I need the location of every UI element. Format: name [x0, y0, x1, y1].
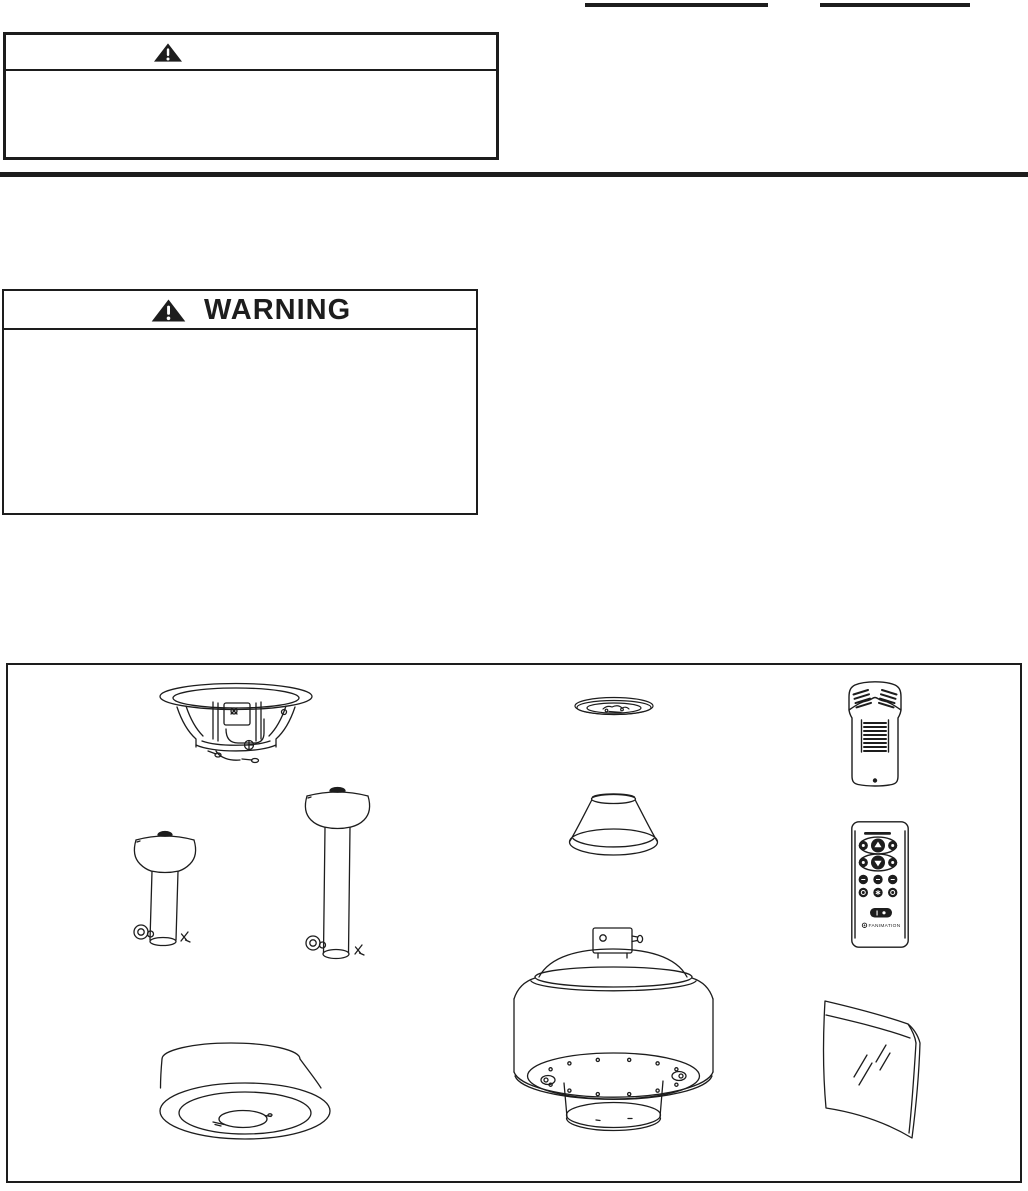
parts-diagram-box: I FANIMATION	[6, 663, 1022, 1183]
ceiling-canopy-drawing	[158, 1032, 333, 1142]
warning-triangle-icon	[153, 42, 183, 63]
remote-timer-buttons	[859, 875, 898, 884]
remote-speed-down-buttons	[859, 856, 898, 870]
ceiling-mount-bracket-drawing	[156, 681, 316, 776]
caution-box-header	[6, 35, 496, 71]
remote-brand-label: FANIMATION	[869, 923, 901, 929]
ceiling-trim-ring-drawing	[573, 694, 655, 722]
warning-box: WARNING	[2, 289, 478, 515]
glass-side-panel-drawing	[820, 1000, 922, 1142]
caution-box	[3, 32, 499, 160]
warning-title: WARNING	[204, 296, 351, 325]
remote-control-drawing: I FANIMATION	[851, 821, 909, 948]
long-downrod-drawing	[300, 783, 375, 968]
warning-box-header: WARNING	[4, 291, 476, 330]
remote-receiver-drawing	[845, 681, 905, 788]
remote-mode-buttons	[859, 888, 898, 897]
remote-light-button: I	[870, 908, 892, 918]
svg-text:I: I	[876, 909, 878, 918]
warning-triangle-icon	[150, 298, 187, 323]
fanimation-logo-icon	[862, 923, 866, 927]
short-downrod-drawing	[130, 828, 200, 953]
fan-motor-assembly-drawing	[512, 925, 717, 1135]
fill-in-underline-2	[820, 3, 970, 7]
remote-speed-up-buttons	[859, 839, 898, 853]
coupling-cover-cone-drawing	[566, 791, 661, 857]
manual-page: WARNING	[0, 0, 1028, 1191]
section-divider-rule	[0, 172, 1028, 177]
fill-in-underline-1	[585, 3, 768, 7]
